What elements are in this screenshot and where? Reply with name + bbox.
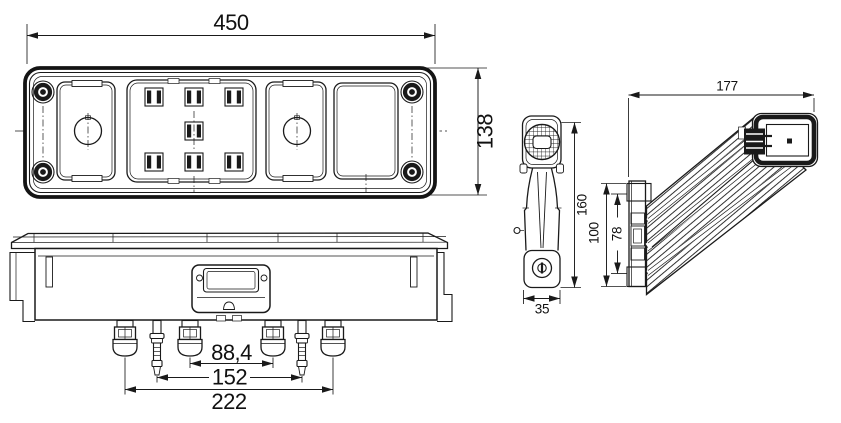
technical-drawing-canvas: 450 138 — [0, 0, 841, 423]
marker-height-label: 160 — [575, 194, 590, 216]
threaded-stud — [150, 321, 164, 376]
base-height-inner-label: 78 — [610, 227, 625, 241]
marker-head — [520, 116, 564, 173]
base-height-outer-label: 100 — [587, 222, 602, 244]
stud-spacing-middle-label: 152 — [212, 365, 247, 390]
plug-connector — [113, 321, 137, 357]
mounting-screw-bottom-left — [32, 161, 54, 183]
plug-connector — [178, 321, 202, 357]
marker-foot — [524, 251, 560, 288]
mounting-screw-top-right — [401, 81, 423, 103]
lamp-section-2 — [127, 79, 256, 194]
marker-foot-width-label: 35 — [535, 302, 549, 317]
mounting-screw-top-left — [32, 81, 54, 103]
plug-connector — [261, 321, 285, 357]
marker-lamp-side-view: 177 100 78 — [587, 79, 818, 295]
plug-connector — [321, 321, 345, 357]
rear-lamp-bottom-view: 88,4 152 222 — [10, 233, 452, 414]
right-mounting-bracket — [437, 253, 452, 322]
dim-stud-spacing-middle: 152 — [157, 365, 302, 390]
rear-lamp-front-view: 450 138 — [15, 10, 498, 197]
marker-lamp-front-view: 160 35 — [514, 116, 590, 317]
dim-marker-height: 160 — [561, 123, 590, 288]
rear-lamp-height-label: 138 — [473, 114, 498, 149]
lens-edge-profile — [12, 233, 448, 249]
lamp-section-1 — [57, 81, 115, 182]
central-connector — [192, 265, 270, 321]
lamp-section-3 — [266, 81, 326, 182]
marker-body — [514, 169, 562, 251]
dim-base-height-inner: 78 — [610, 194, 628, 274]
dim-rear-lamp-width: 450 — [27, 10, 435, 64]
rear-lamp-width-label: 450 — [213, 10, 248, 35]
marker-depth-label: 177 — [716, 79, 738, 94]
lamp-section-4 — [334, 83, 398, 192]
side-clip — [514, 228, 520, 234]
stud-spacing-inner-label: 88,4 — [211, 340, 252, 365]
mounting-screw-bottom-right — [401, 161, 423, 183]
lens-reference-dot — [787, 139, 792, 144]
stud-spacing-outer-label: 222 — [211, 389, 246, 414]
threaded-stud — [295, 321, 309, 376]
left-mounting-bracket — [10, 253, 35, 322]
dim-marker-foot-width: 35 — [524, 290, 561, 317]
technical-drawing-page: 450 138 — [0, 0, 841, 423]
